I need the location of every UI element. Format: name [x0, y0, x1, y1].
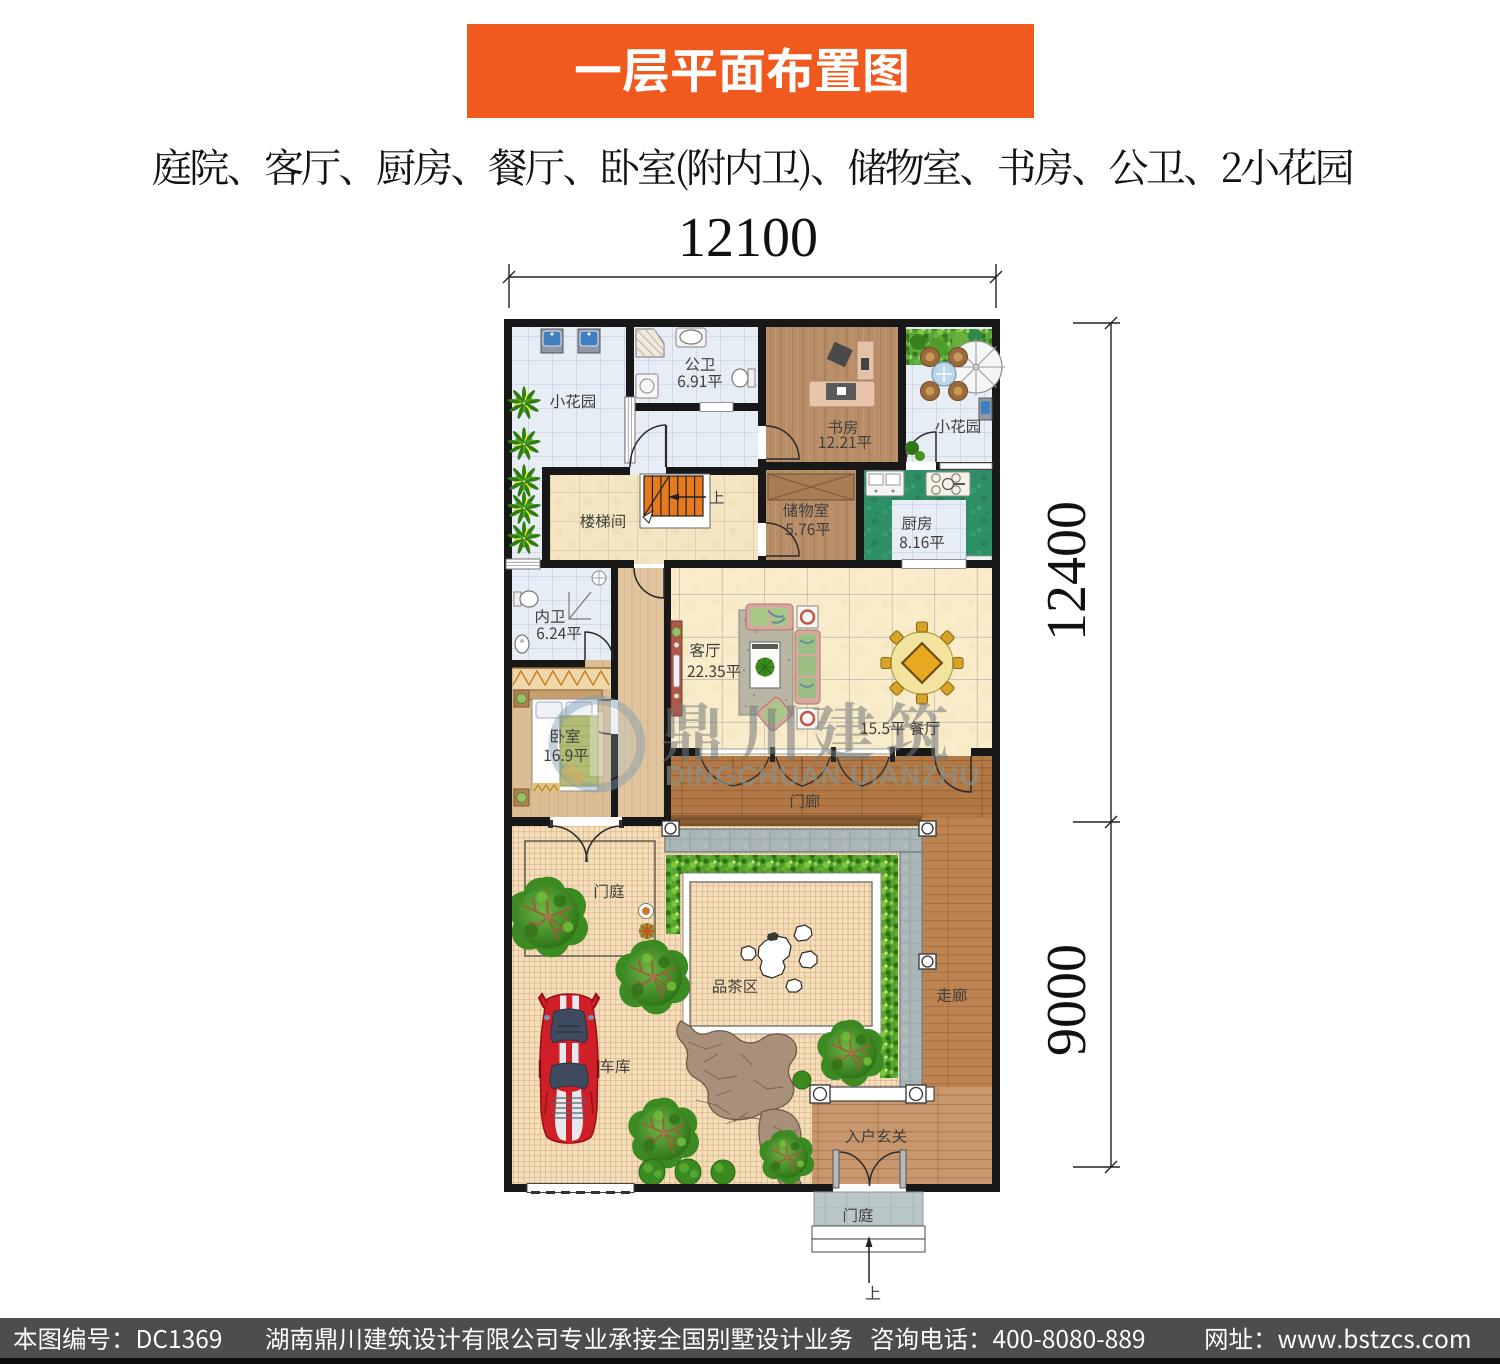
svg-text:12400: 12400: [1036, 501, 1098, 641]
svg-text:9000: 9000: [1036, 944, 1098, 1056]
svg-text:DINGCHUAN UIANZHU: DINGCHUAN UIANZHU: [665, 760, 980, 791]
svg-text:12100: 12100: [678, 207, 818, 269]
